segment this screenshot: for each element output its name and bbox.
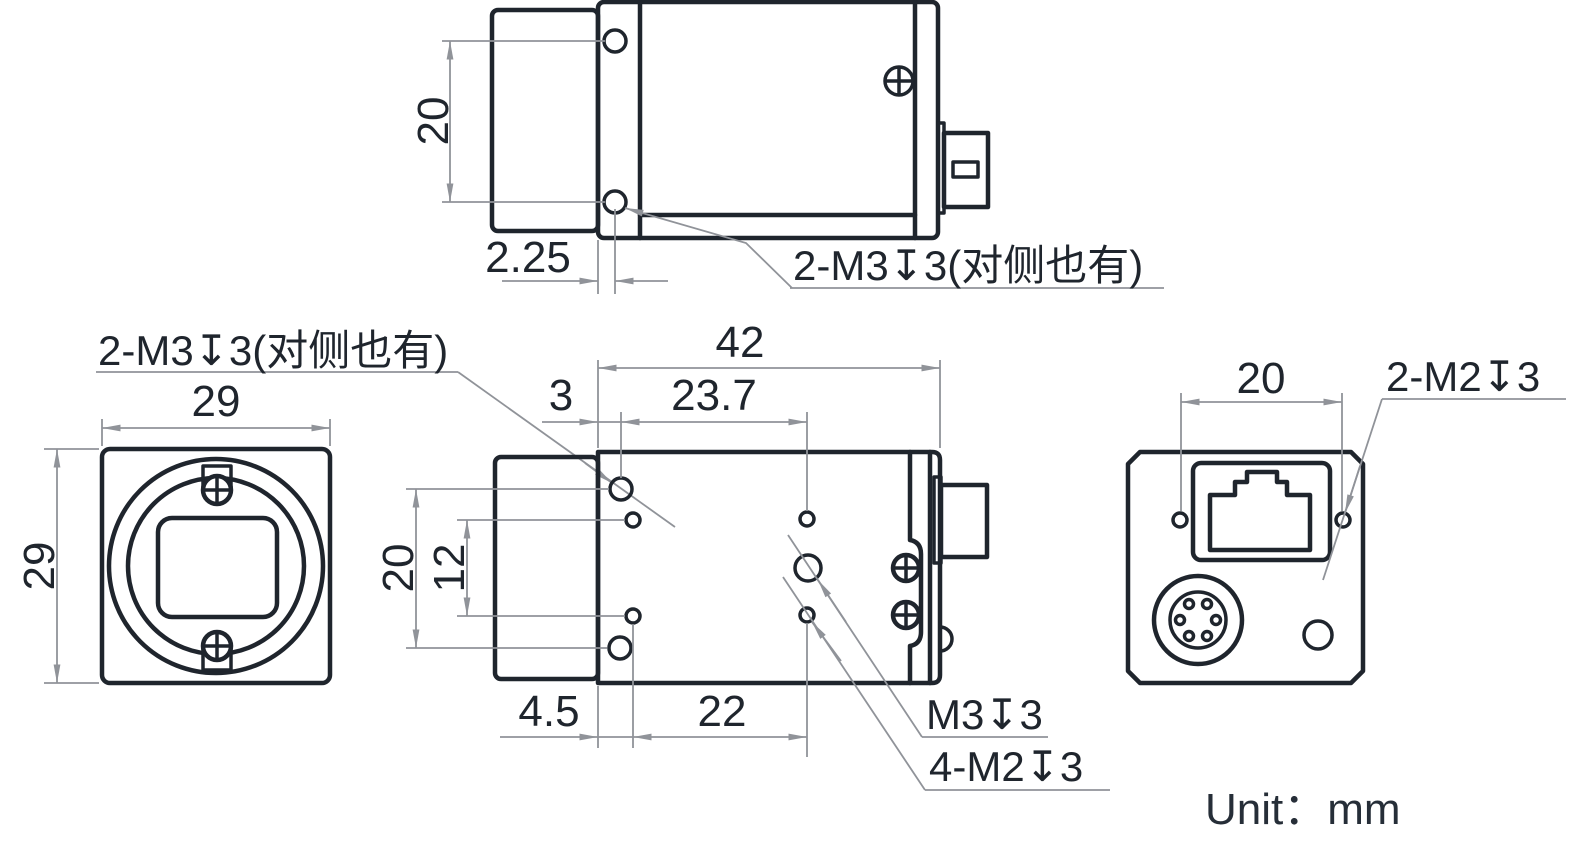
front-view: 29 29 2-M3↧3(对侧也有) bbox=[15, 327, 675, 683]
dim-text-side-22: 22 bbox=[698, 687, 747, 736]
dim-text-top-2-25: 2.25 bbox=[485, 233, 571, 282]
dim-text-front-width: 29 bbox=[192, 377, 241, 426]
front-screw-top bbox=[203, 476, 231, 504]
side-rear-connector bbox=[934, 477, 987, 563]
dim-side-front-offset: 3 23.7 bbox=[542, 371, 807, 511]
rear-view: 20 2-M2↧3 bbox=[1128, 353, 1566, 683]
dim-front-width: 29 bbox=[102, 377, 330, 446]
dim-text-side-20: 20 bbox=[374, 544, 423, 593]
dim-text-front-height: 29 bbox=[15, 542, 64, 591]
side-m3-center-hole bbox=[795, 555, 821, 581]
side-m3-hole-bottom bbox=[609, 637, 631, 659]
top-lens-mount-outline bbox=[492, 10, 598, 231]
label-text-front-thread: 2-M3↧3(对侧也有) bbox=[98, 327, 448, 374]
connector-pin bbox=[1185, 600, 1194, 609]
rj45-port bbox=[1210, 472, 1310, 550]
side-body-outline bbox=[598, 452, 940, 683]
unit-note: Unit：mm bbox=[1205, 785, 1401, 834]
top-body-outline bbox=[598, 2, 938, 238]
side-m2-hole-bottom-left bbox=[626, 609, 640, 623]
dim-text-rear-20: 20 bbox=[1237, 354, 1286, 403]
top-m3-hole-1 bbox=[604, 30, 626, 52]
label-rear-threads: 2-M2↧3 bbox=[1323, 353, 1566, 580]
dim-rear-hole-spacing: 20 bbox=[1181, 354, 1342, 511]
label-text-top-thread: 2-M3↧3(对侧也有) bbox=[793, 242, 1143, 289]
connector-pin bbox=[1185, 632, 1194, 641]
dim-side-bottom: 4.5 22 bbox=[500, 623, 807, 757]
label-top-thread: 2-M3↧3(对侧也有) bbox=[625, 208, 1164, 289]
side-screw-bottom bbox=[893, 602, 919, 628]
side-view: 42 3 23.7 20 12 bbox=[374, 318, 1110, 790]
front-screw-bottom bbox=[203, 632, 231, 660]
top-screw bbox=[885, 67, 913, 95]
connector-pin bbox=[1203, 600, 1212, 609]
side-lens-mount-outline bbox=[495, 457, 598, 679]
dim-side-hole-spacing: 20 bbox=[374, 489, 609, 648]
connector-pin bbox=[1212, 616, 1221, 625]
power-io-connector bbox=[1154, 576, 1242, 664]
top-view: 20 2.25 2-M3↧3(对侧也有) bbox=[409, 2, 1164, 294]
dim-text-side-23-7: 23.7 bbox=[671, 371, 757, 420]
dim-front-height: 29 bbox=[15, 449, 99, 683]
front-sensor-window bbox=[158, 518, 277, 617]
connector-pin bbox=[1203, 632, 1212, 641]
side-m2-hole-top-left bbox=[626, 513, 640, 527]
label-text-m3: M3↧3 bbox=[926, 691, 1043, 738]
label-front-thread: 2-M3↧3(对侧也有) bbox=[96, 327, 675, 527]
drawing-svg: 20 2.25 2-M3↧3(对侧也有) bbox=[0, 0, 1574, 857]
top-rear-connector bbox=[938, 123, 988, 213]
dim-text-side-12: 12 bbox=[425, 544, 474, 593]
dim-text-side-3: 3 bbox=[549, 371, 573, 420]
dim-side-length: 42 bbox=[598, 318, 940, 448]
side-m2-hole-top-right bbox=[800, 512, 814, 526]
dim-text-top-20: 20 bbox=[409, 97, 458, 146]
label-text-rear-2-m2: 2-M2↧3 bbox=[1386, 353, 1540, 400]
label-text-4-m2: 4-M2↧3 bbox=[929, 743, 1083, 790]
side-screw-top bbox=[893, 555, 919, 581]
rear-m2-hole-left bbox=[1173, 513, 1187, 527]
status-led-hole bbox=[1304, 621, 1332, 649]
dim-text-side-42: 42 bbox=[716, 318, 765, 367]
dim-top-hole-spacing: 20 bbox=[409, 41, 605, 202]
connector-pin bbox=[1176, 616, 1185, 625]
dim-side-m2-spacing-v: 12 bbox=[425, 520, 625, 616]
camera-dimension-drawing: 20 2.25 2-M3↧3(对侧也有) bbox=[0, 0, 1574, 857]
dim-text-side-4-5: 4.5 bbox=[518, 687, 579, 736]
